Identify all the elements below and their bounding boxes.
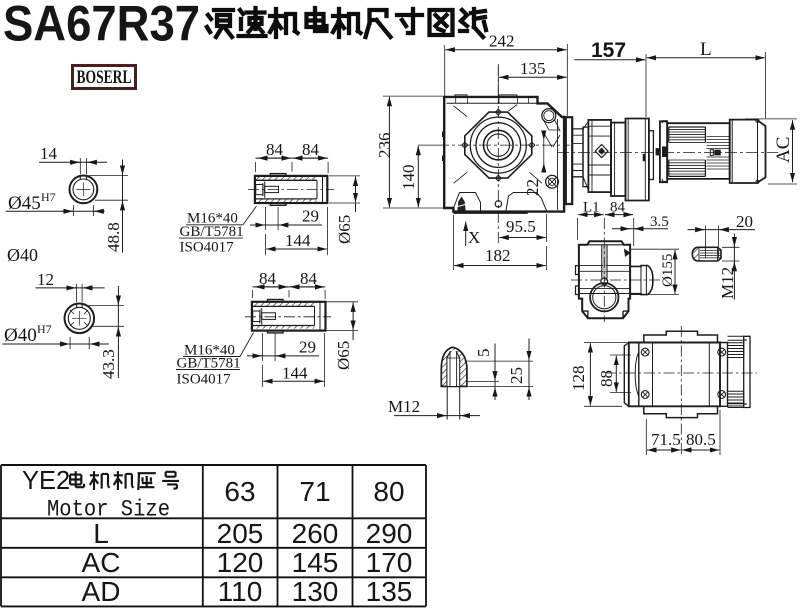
svg-text:12: 12	[37, 270, 54, 289]
svg-text:71: 71	[299, 476, 330, 507]
svg-text:63: 63	[224, 476, 255, 507]
svg-text:X: X	[468, 228, 480, 247]
svg-text:182: 182	[485, 246, 511, 265]
svg-text:L: L	[93, 518, 109, 549]
svg-text:GB/T5781: GB/T5781	[180, 224, 244, 240]
svg-text:71.5: 71.5	[651, 430, 681, 449]
svg-text:144: 144	[285, 231, 311, 250]
svg-text:157: 157	[591, 39, 626, 62]
svg-text:170: 170	[366, 547, 413, 578]
svg-text:130: 130	[292, 576, 339, 607]
svg-text:M12: M12	[718, 267, 737, 299]
svg-text:22: 22	[523, 179, 542, 196]
svg-text:BOSERL: BOSERL	[77, 67, 132, 88]
svg-text:Ø155: Ø155	[660, 254, 676, 287]
svg-text:95.5: 95.5	[506, 217, 536, 236]
svg-text:Ø65: Ø65	[334, 341, 353, 370]
svg-text:5: 5	[474, 349, 493, 358]
svg-text:128: 128	[569, 366, 588, 392]
svg-text:25: 25	[507, 367, 526, 384]
svg-text:145: 145	[292, 547, 339, 578]
svg-text:120: 120	[217, 547, 264, 578]
svg-text:84: 84	[259, 269, 277, 288]
svg-text:29: 29	[299, 338, 316, 357]
svg-text:48.8: 48.8	[104, 222, 123, 252]
svg-text:29: 29	[302, 207, 319, 226]
svg-text:84: 84	[302, 140, 320, 159]
svg-text:84: 84	[266, 140, 284, 159]
svg-text:84: 84	[300, 269, 318, 288]
svg-text:H7: H7	[41, 190, 56, 204]
svg-text:80: 80	[373, 476, 404, 507]
svg-text:43.3: 43.3	[99, 349, 118, 379]
svg-text:GB/T5781: GB/T5781	[177, 356, 241, 372]
svg-text:20: 20	[736, 212, 753, 231]
svg-text:YE2: YE2	[22, 467, 70, 495]
svg-text:14: 14	[40, 144, 58, 163]
svg-text:290: 290	[366, 518, 413, 549]
svg-text:AD: AD	[82, 576, 121, 607]
svg-text:110: 110	[218, 576, 263, 607]
svg-text:L1: L1	[583, 200, 600, 216]
svg-text:242: 242	[489, 32, 515, 51]
svg-text:88: 88	[597, 370, 616, 387]
svg-text:135: 135	[366, 576, 413, 607]
svg-text:AC: AC	[82, 547, 121, 578]
svg-text:205: 205	[217, 518, 264, 549]
svg-text:Ø40: Ø40	[7, 245, 38, 265]
svg-text:3.5: 3.5	[650, 214, 669, 230]
svg-text:Ø45: Ø45	[8, 193, 41, 214]
svg-text:M12: M12	[388, 397, 420, 416]
svg-text:Ø65: Ø65	[335, 215, 354, 244]
svg-text:80.5: 80.5	[686, 430, 716, 449]
svg-text:135: 135	[520, 59, 546, 78]
svg-text:140: 140	[399, 165, 418, 191]
svg-text:ISO4017: ISO4017	[180, 240, 235, 256]
svg-text:84: 84	[610, 200, 626, 216]
svg-text:H7: H7	[37, 322, 52, 336]
svg-text:Ø40: Ø40	[4, 325, 37, 346]
svg-text:144: 144	[282, 364, 308, 383]
svg-text:236: 236	[375, 133, 394, 159]
svg-text:L: L	[700, 39, 712, 60]
svg-text:SA67R37: SA67R37	[3, 0, 200, 52]
svg-text:260: 260	[292, 518, 339, 549]
svg-text:AC: AC	[773, 137, 794, 163]
svg-text:ISO4017: ISO4017	[177, 372, 232, 388]
